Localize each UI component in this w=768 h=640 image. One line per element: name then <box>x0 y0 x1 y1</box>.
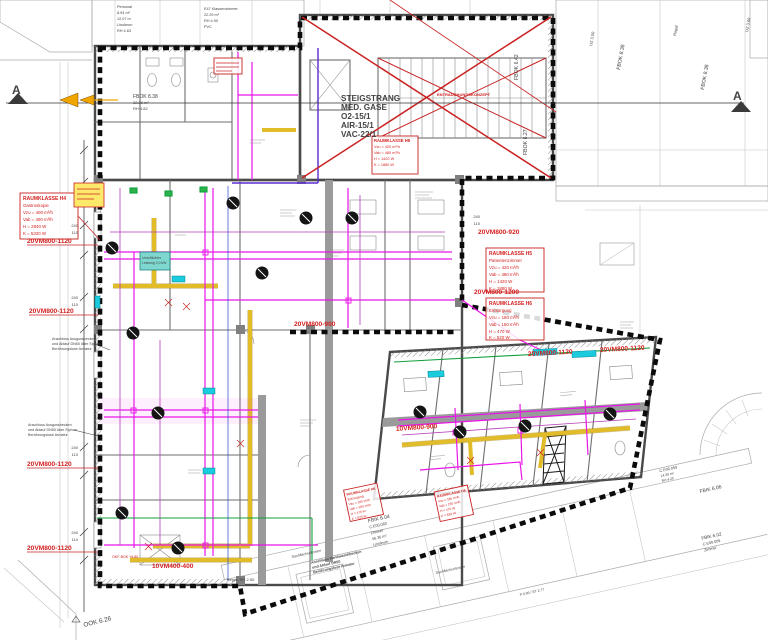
ausguss1-l3: Berührungslose Armatur <box>52 347 93 351</box>
tag-vm1: 20VM800-1120 <box>27 238 72 245</box>
room-treppe: Treppe RH 2.50 <box>226 577 255 582</box>
dim-240-5: 240 <box>473 214 480 219</box>
raumklasse-box-wing2: RAUMKLASSE H6 Vzu = 180 m³/h Vab = 150 m… <box>434 485 473 521</box>
tag-vm11: 10VM800-900 <box>396 423 438 433</box>
cad-floorplan-canvas: A A RAUMKLASSE H4 Gastroskopie Vzu = 400… <box>0 0 768 640</box>
raumklasse-box-d: RAUMKLASSE H5 Vzu = 420 m³/h Vab = 480 m… <box>372 136 418 174</box>
raumklasse-c-room: Entsorgung <box>489 308 512 313</box>
dim-110-4: 110 <box>72 537 79 542</box>
raumklasse-a-title: RAUMKLASSE H4 <box>23 196 66 202</box>
ausguss1-l1: Anschluss Ausgussbecken <box>52 337 96 341</box>
ausguss2-l1: Anschluss Ausgussbecken <box>28 423 72 427</box>
section-marker-a-right: A <box>733 89 742 103</box>
dim-240-3: 240 <box>71 445 78 450</box>
ausguss2-l2: und Ablauf DN50 über Siphon <box>28 428 77 432</box>
dim-240-1: 240 <box>71 223 78 228</box>
raumklasse-d-k: K = 1880 W <box>374 163 394 167</box>
raumklasse-c-k: K = 520 W <box>489 335 510 340</box>
room-zr-name: Zimmer <box>704 546 718 553</box>
raumklasse-b-title: RAUMKLASSE H5 <box>489 251 532 257</box>
room-klasse-name: E47 Klassenzimmer <box>204 7 238 11</box>
beam-uz1: UZ 3.50 <box>588 31 596 47</box>
raumklasse-c-h: H = 470 W <box>489 329 511 334</box>
raumklasse-box-b: RAUMKLASSE H5 Patientenzimmer Vzu = 420 … <box>486 248 544 292</box>
tag-vm6: 20VM800-1200 <box>474 289 519 296</box>
raumklasse-a-h: H = 2840 W <box>23 224 47 229</box>
tag-vm9: 20VM800-1120 <box>600 345 645 354</box>
skylight-label-1: Dachflächenfenster <box>291 548 322 559</box>
ausguss1-l2: und Ablauf DN50 über Siphon <box>52 342 101 346</box>
dim-110-2: 110 <box>72 302 79 307</box>
raumklasse-box-c: RAUMKLASSE H6 Entsorgung Vzu = 180 m³/h … <box>486 298 544 340</box>
riser-l4: AIR-15/1 <box>341 121 374 130</box>
room-klasse-area: 22.29 m² <box>204 13 220 17</box>
raumklasse-b-room: Patientenzimmer <box>489 258 522 263</box>
dim-240-2: 240 <box>71 295 78 300</box>
room-bath-area: 32.29 m² <box>133 100 149 105</box>
riser-l1: STEIGSTRANG <box>341 94 400 103</box>
ausguss2-l3: Berührungslose Armatur <box>28 433 69 437</box>
riser-l2: MED. GASE <box>341 103 387 112</box>
umluft-line1: Umluftkühler <box>142 256 162 260</box>
level-fbok642: FBOK 6.42 <box>514 54 520 80</box>
raumklasse-d-vzu: Vzu = 420 m³/h <box>374 145 400 149</box>
room-personal-floor: Linoleum <box>117 23 132 27</box>
room-regal: Regal <box>672 25 679 36</box>
raumklasse-c-vzu: Vzu = 180 m³/h <box>489 315 519 320</box>
context-rotated-wing <box>221 448 768 640</box>
room-personal-area: 8.94 m² <box>117 11 131 15</box>
raumklasse-d-h: H = 1420 W <box>374 157 395 161</box>
umluft-teal-box: Umluftkühler Leistung 2,0 kW <box>140 252 170 270</box>
tag-vm5: 20VM800-920 <box>478 229 520 236</box>
stair-demolition-cross <box>302 0 556 178</box>
tag-vm7: 20VM800-900 <box>294 321 336 328</box>
tag-vm4: 20VM800-1120 <box>27 545 72 552</box>
tag-okf: OKF-BOK +9.80 <box>112 555 138 559</box>
room-klasse-floor: PVC <box>204 25 212 29</box>
dim-110-3: 110 <box>72 452 79 457</box>
raumklasse-c-vab: Vab = 150 m³/h <box>489 322 519 327</box>
stair-dim-label: P 0.95 / ST 2.77 <box>519 588 544 597</box>
raumklasse-c-title: RAUMKLASSE H6 <box>489 301 532 307</box>
room-personal-name: Personal <box>117 5 132 9</box>
umluft-line2: Leistung 2,0 kW <box>142 261 167 265</box>
dim-110-1: 110 <box>72 230 79 235</box>
level-ook: OOK 6.26 <box>72 615 112 629</box>
raumklasse-d-vab: Vab = 480 m³/h <box>374 151 400 155</box>
crossed-note: ENTRAUCHUNGSKONZEPT <box>437 92 491 97</box>
dimension-lines-left <box>80 140 88 612</box>
small-red-box <box>214 58 242 74</box>
riser-l3: O2-15/1 <box>341 112 371 121</box>
raumklasse-a-k: K = 5320 W <box>23 231 47 236</box>
room-personal-perim: 12.07 m <box>117 17 131 21</box>
raumklasse-b-vzu: Vzu = 420 m³/h <box>489 265 519 270</box>
riser-purple <box>232 48 318 183</box>
riser-l5: VAC-22/1 <box>341 130 377 139</box>
dim-240-4: 240 <box>71 530 78 535</box>
level-fbok627: FBOK 6.27 <box>523 129 529 155</box>
flow-arrows-orange <box>60 93 118 107</box>
riser-note: STEIGSTRANG MED. GASE O2-15/1 AIR-15/1 V… <box>341 94 400 139</box>
raumklasse-a-room: Gastroskopie <box>23 203 49 208</box>
highlight-yellow-box <box>74 183 104 207</box>
room-zb-floor: Linoleum <box>373 540 389 547</box>
floorplan-drawing: A A RAUMKLASSE H4 Gastroskopie Vzu = 400… <box>0 0 768 640</box>
room-personal-rh: RH 4.63 <box>117 29 131 33</box>
tag-vm8: 20VM800-1120 <box>528 349 573 358</box>
raumklasse-b-h: H = 1420 W <box>489 279 513 284</box>
level-fbok838-c: FBOK 8.38 <box>700 64 710 90</box>
raumklasse-a-vab: Vab = 400 m³/h <box>23 217 53 222</box>
plumbing-notes: Anschluss Ausgussbecken und Ablauf DN50 … <box>28 337 364 575</box>
raumklasse-b-vab: Vab = 480 m³/h <box>489 272 519 277</box>
level-fbok838-b: FBOK 8.38 <box>616 44 626 70</box>
section-arrow-left <box>8 93 28 104</box>
level-ook-text: OOK 6.26 <box>83 615 113 629</box>
room-bath-rh: RH 4.82 <box>133 106 148 111</box>
level-fbik606: FBIK 6.06 <box>699 484 722 495</box>
tag-vm3: 20VM800-1120 <box>27 461 72 468</box>
dim-110-5: 110 <box>474 221 481 226</box>
raumklasse-d-title: RAUMKLASSE H5 <box>374 138 411 143</box>
raumklasse-a-vzu: Vzu = 400 m³/h <box>23 210 53 215</box>
tag-vm2: 20VM800-1120 <box>29 308 74 315</box>
room-klasse-rh: RH 4.90 <box>204 19 218 23</box>
tag-vm10: 10VM400-400 <box>152 563 194 570</box>
